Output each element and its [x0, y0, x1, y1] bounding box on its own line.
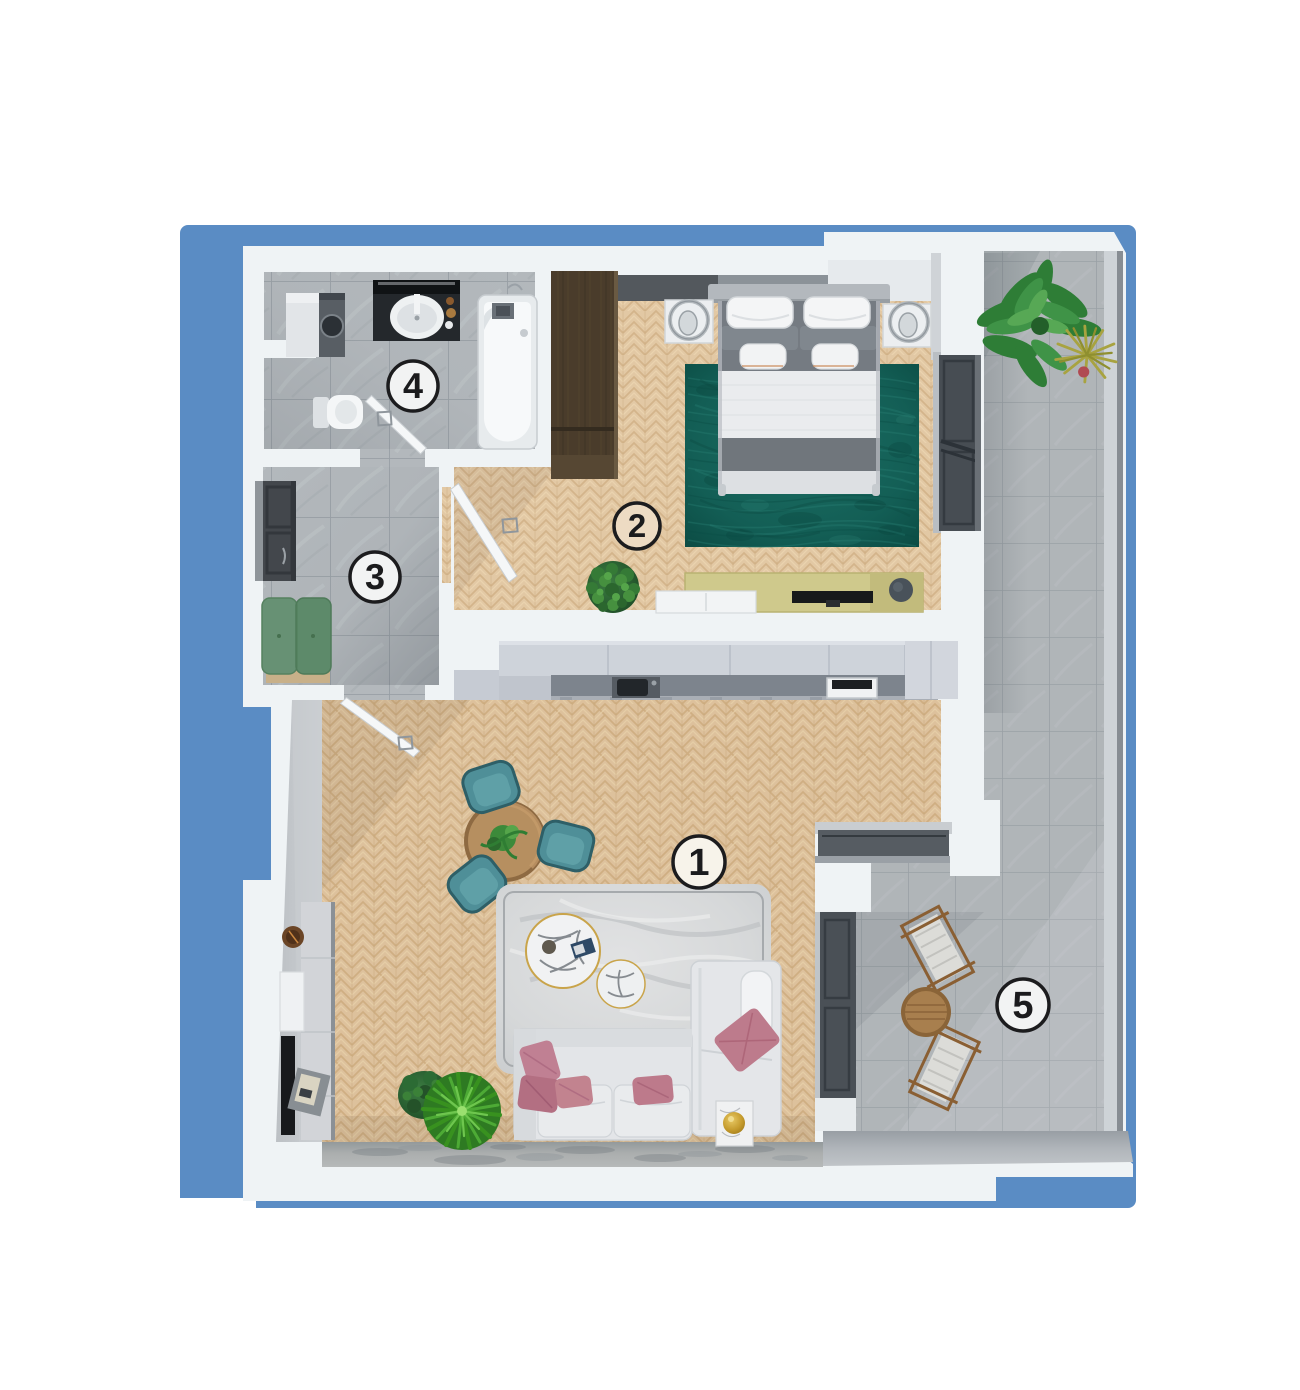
- svg-text:3: 3: [365, 556, 385, 597]
- svg-text:2: 2: [628, 507, 646, 544]
- svg-text:5: 5: [1012, 985, 1033, 1027]
- svg-text:1: 1: [688, 842, 709, 884]
- svg-text:4: 4: [403, 365, 423, 406]
